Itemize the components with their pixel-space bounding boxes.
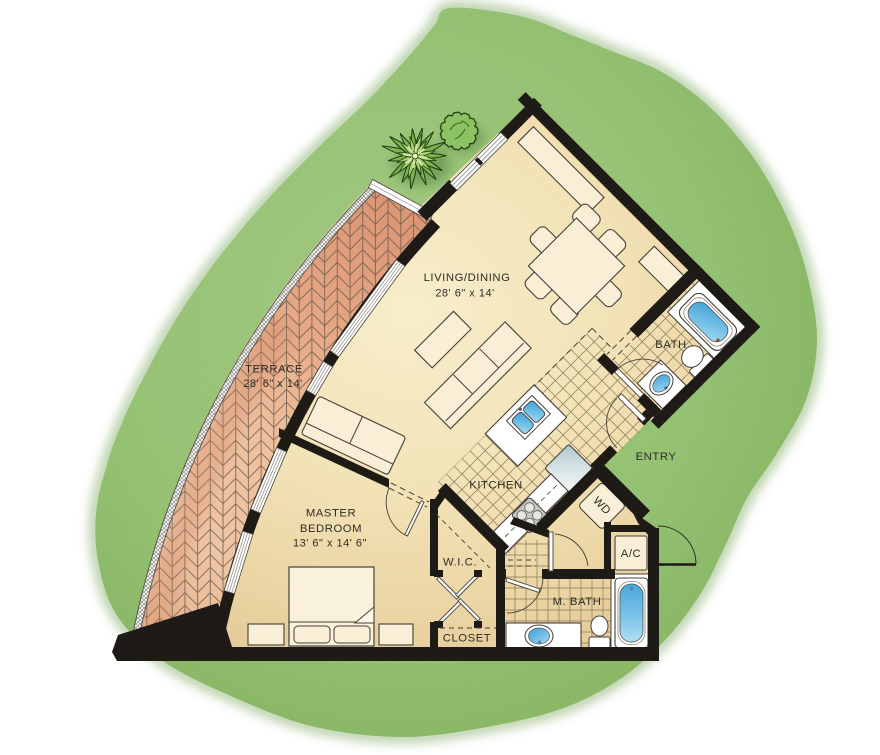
svg-text:ENTRY: ENTRY — [636, 451, 677, 463]
svg-text:13' 6" x 14' 6": 13' 6" x 14' 6" — [293, 538, 367, 550]
svg-text:28' 6" x 14': 28' 6" x 14' — [435, 288, 494, 300]
svg-text:BATH: BATH — [655, 339, 687, 351]
svg-text:28' 6" x 14': 28' 6" x 14' — [243, 378, 302, 390]
svg-text:TERRACE: TERRACE — [245, 364, 303, 376]
svg-text:KITCHEN: KITCHEN — [469, 480, 522, 492]
svg-text:CLOSET: CLOSET — [443, 633, 492, 645]
svg-text:LIVING/DINING: LIVING/DINING — [424, 272, 511, 284]
svg-text:M. BATH: M. BATH — [553, 596, 602, 608]
svg-text:W.I.C.: W.I.C. — [443, 557, 477, 569]
svg-text:A/C: A/C — [621, 548, 641, 560]
svg-text:BEDROOM: BEDROOM — [300, 523, 362, 535]
svg-text:MASTER: MASTER — [306, 508, 356, 520]
